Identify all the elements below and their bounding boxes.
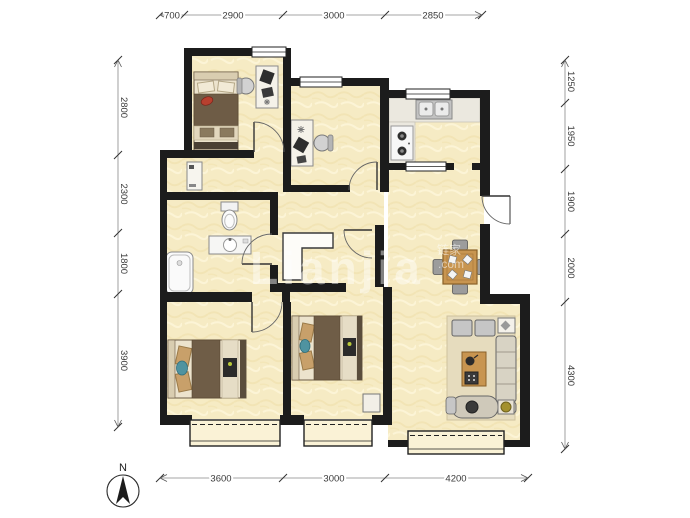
dining-chair (453, 284, 468, 294)
dim-top-3000: 3000 (323, 11, 344, 22)
dimension-right: 1250 1950 1900 2000 4300 (561, 56, 576, 453)
lamp-table-icon (498, 400, 514, 414)
dim-bottom-4200: 4200 (445, 474, 466, 485)
desk-icon (291, 120, 313, 166)
dim-right-4300: 4300 (565, 365, 576, 386)
bay-window (304, 420, 372, 446)
dim-left-2300: 2300 (118, 183, 129, 204)
dim-left-1800: 1800 (118, 253, 129, 274)
dim-right-1900: 1900 (565, 191, 576, 212)
living-room-furniture (446, 316, 516, 420)
dimension-bottom: 3600 3000 4200 (156, 474, 532, 485)
window (406, 89, 450, 99)
dim-top-2850: 2850 (422, 11, 443, 22)
dim-left-2800: 2800 (118, 97, 129, 118)
window (300, 77, 342, 87)
ottoman (475, 320, 495, 336)
chair-icon (237, 78, 254, 94)
floorplan-svg: 700 2900 3000 2850 3600 3000 4200 2800 2… (0, 0, 690, 518)
bedroom2-furniture (168, 340, 246, 398)
watermark-text: Lianjia (250, 242, 424, 294)
coffee-table-icon (462, 352, 486, 386)
dim-bottom-3600: 3600 (210, 474, 231, 485)
north-label: N (119, 462, 127, 474)
toilet-icon (221, 202, 238, 230)
window (406, 162, 446, 171)
door-entry (482, 196, 510, 224)
dim-right-1950: 1950 (565, 125, 576, 146)
dim-top-700: 700 (164, 11, 180, 22)
dim-right-1250: 1250 (565, 71, 576, 92)
ottoman (452, 320, 472, 336)
compass: N (107, 462, 139, 507)
bed-icon (168, 340, 246, 398)
watermark-suffix: .com (438, 257, 464, 271)
dim-bottom-3000: 3000 (323, 474, 344, 485)
dim-left-3900: 3900 (118, 350, 129, 371)
dim-top-2900: 2900 (222, 11, 243, 22)
bed-icon (292, 316, 362, 380)
nightstand-icon (363, 394, 380, 412)
stove-icon (391, 126, 413, 160)
bay-window (408, 431, 504, 454)
bay-window (190, 420, 280, 446)
chair-icon (314, 135, 333, 151)
bathtub-icon (166, 252, 193, 294)
kitchen-sink-icon (416, 100, 452, 119)
hall-cabinet-icon (187, 162, 202, 190)
desk-icon (256, 66, 278, 108)
dim-right-2000: 2000 (565, 257, 576, 278)
dimension-top: 700 2900 3000 2850 (156, 11, 486, 22)
floorplan-canvas: 700 2900 3000 2850 3600 3000 4200 2800 2… (0, 0, 690, 518)
dimension-left: 2800 2300 1800 3900 (114, 56, 129, 431)
watermark-cjk: 链家 (437, 242, 461, 257)
window (252, 47, 286, 57)
bed-icon (194, 72, 238, 150)
